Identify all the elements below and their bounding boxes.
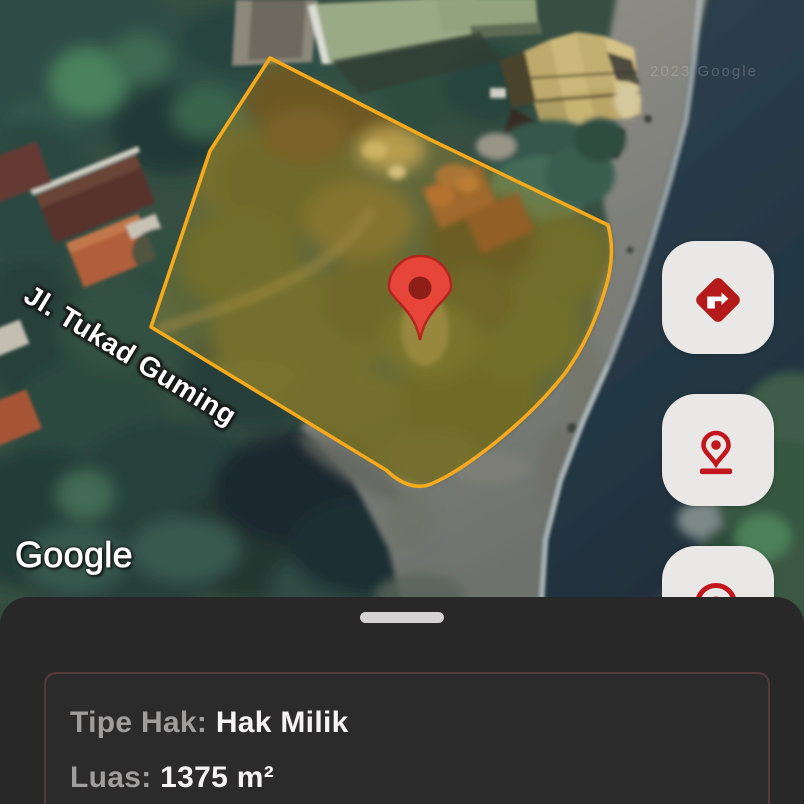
svg-text:2023 Google: 2023 Google	[650, 63, 758, 80]
